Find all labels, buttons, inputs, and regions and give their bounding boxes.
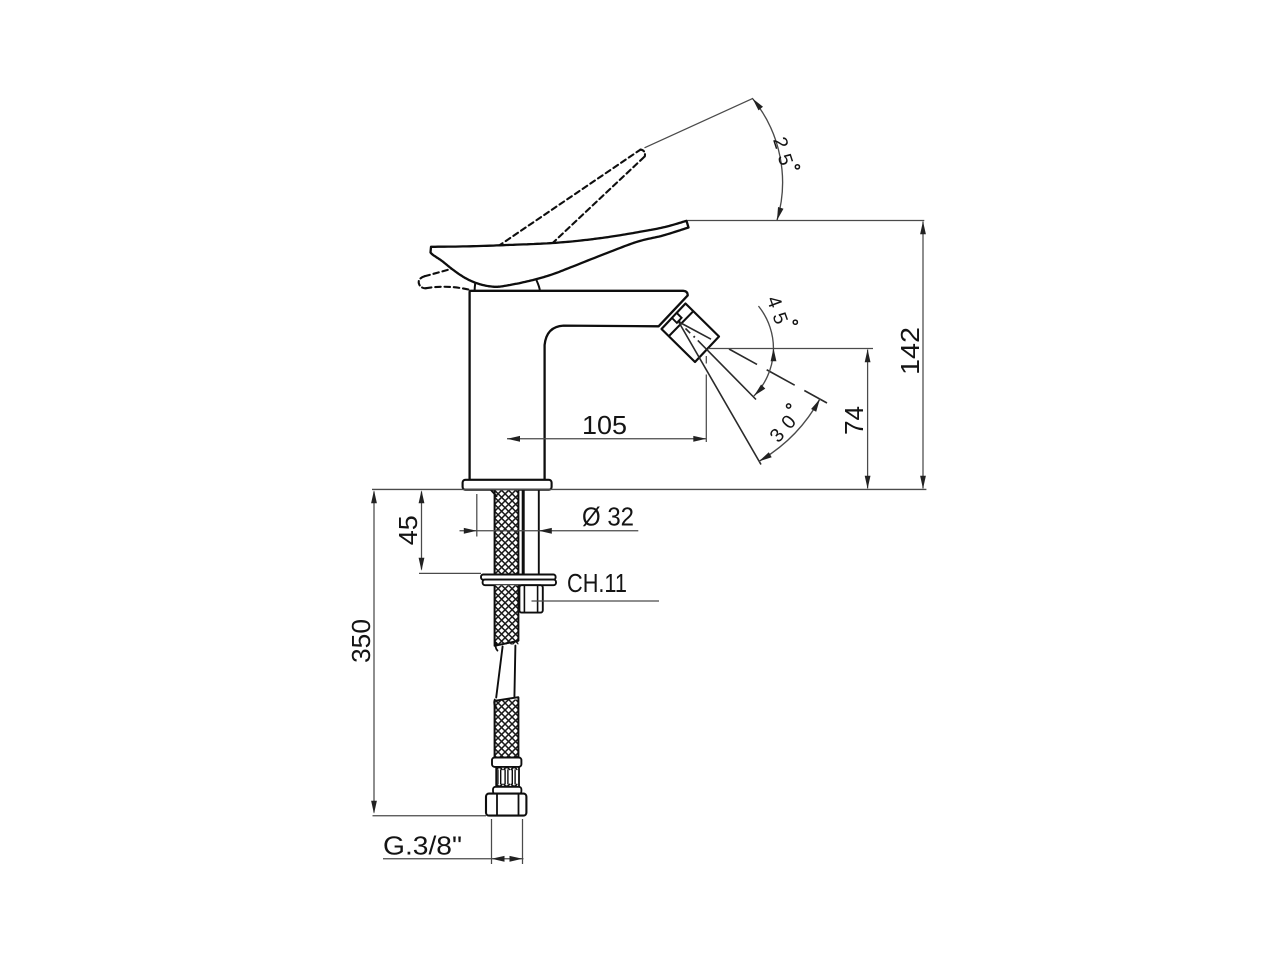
svg-text:Ø 32: Ø 32: [582, 502, 634, 532]
svg-text:350: 350: [346, 619, 376, 663]
svg-text:G.3/8": G.3/8": [383, 831, 462, 861]
svg-text:105: 105: [582, 410, 627, 440]
svg-text:142: 142: [895, 327, 925, 375]
svg-text:74: 74: [839, 406, 869, 435]
svg-text:45: 45: [393, 515, 423, 545]
svg-text:CH.11: CH.11: [567, 568, 627, 598]
